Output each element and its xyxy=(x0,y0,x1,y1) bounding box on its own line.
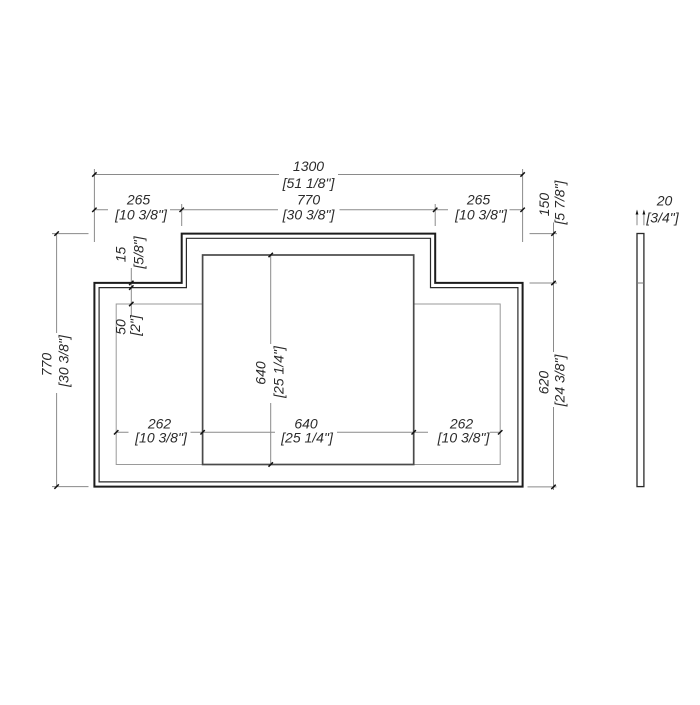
svg-text:[5/8"]: [5/8"] xyxy=(131,235,147,269)
svg-text:[5 7/8"]: [5 7/8"] xyxy=(552,179,568,225)
svg-text:770: 770 xyxy=(39,353,55,377)
svg-text:1300: 1300 xyxy=(293,158,324,174)
svg-text:[10 3/8"]: [10 3/8"] xyxy=(437,430,491,446)
svg-text:265: 265 xyxy=(126,192,151,208)
svg-text:150: 150 xyxy=(536,193,552,217)
svg-text:[24 3/8"]: [24 3/8"] xyxy=(552,354,568,408)
svg-text:640: 640 xyxy=(253,361,269,385)
svg-text:[30 3/8"]: [30 3/8"] xyxy=(282,207,336,223)
svg-text:[10 3/8"]: [10 3/8"] xyxy=(114,207,168,223)
svg-text:[3/4"]: [3/4"] xyxy=(645,210,679,226)
svg-text:[2"]: [2"] xyxy=(127,314,143,337)
svg-text:770: 770 xyxy=(297,192,321,208)
svg-text:20: 20 xyxy=(656,193,673,209)
svg-text:620: 620 xyxy=(536,371,552,395)
svg-text:[25 1/4"]: [25 1/4"] xyxy=(271,345,287,399)
svg-text:[30 3/8"]: [30 3/8"] xyxy=(56,334,72,388)
svg-text:[10 3/8"]: [10 3/8"] xyxy=(454,207,508,223)
svg-text:[51 1/8"]: [51 1/8"] xyxy=(282,175,336,191)
svg-text:15: 15 xyxy=(113,247,129,263)
svg-text:[10 3/8"]: [10 3/8"] xyxy=(134,430,188,446)
svg-text:[25 1/4"]: [25 1/4"] xyxy=(280,430,334,446)
svg-text:265: 265 xyxy=(466,192,491,208)
